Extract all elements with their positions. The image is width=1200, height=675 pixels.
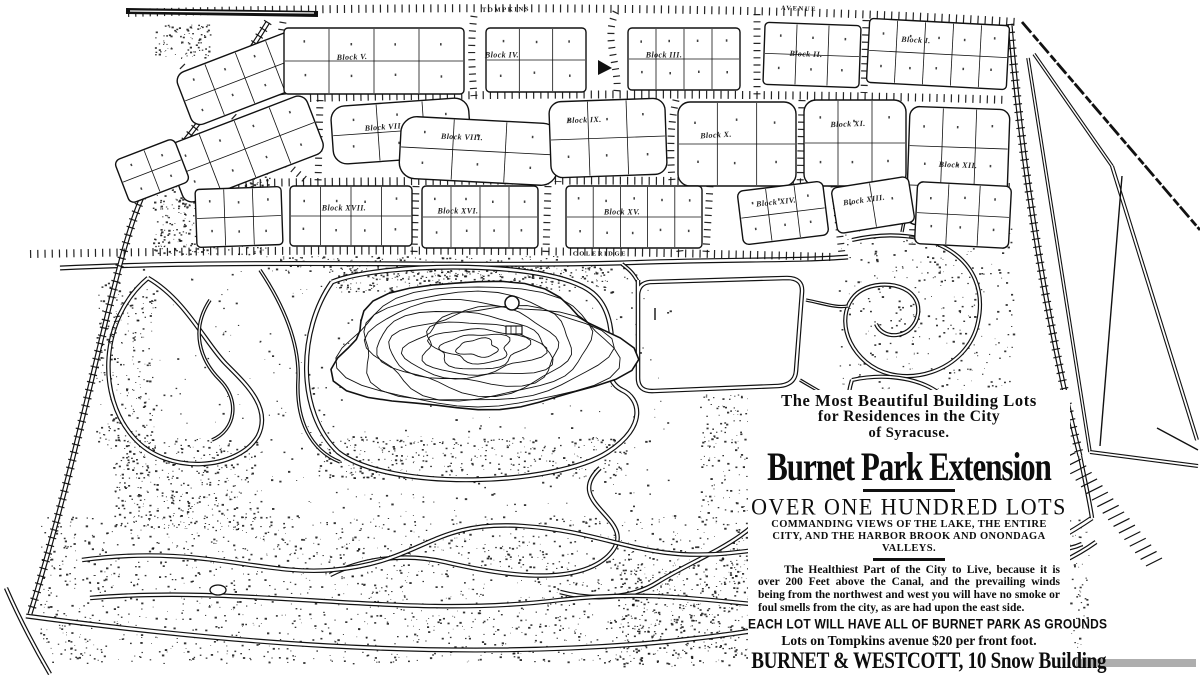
ad-subtitle: OVER ONE HUNDRED LOTS bbox=[748, 494, 1070, 518]
ad-tagline-3: of Syracuse. bbox=[748, 426, 1070, 441]
ad-price-line: Lots on Tompkins avenue $20 per front fo… bbox=[748, 634, 1070, 648]
ad-commanding-views: COMMANDING VIEWS OF THE LAKE, THE ENTIRE… bbox=[759, 519, 1059, 555]
block-label-block-xi: Block XI. bbox=[830, 119, 865, 129]
ad-firm-line: BURNET & WESTCOTT, 10 Snow Building bbox=[751, 650, 1067, 675]
ad-tagline-1: The Most Beautiful Building Lots bbox=[748, 392, 1070, 409]
block-label-block-viii: Block VIII. bbox=[441, 132, 483, 142]
street-label-avenue: AVENUE bbox=[781, 5, 817, 13]
lot-blocks bbox=[114, 18, 1012, 248]
ad-each-lot-line: EACH LOT WILL HAVE ALL OF BURNET PARK AS… bbox=[748, 617, 1070, 631]
street-label-tompkins: TOMPKINS bbox=[482, 6, 530, 14]
street-label-coleridge: COLERIDGE bbox=[573, 251, 627, 258]
ad-tagline-2: for Residences in the City bbox=[748, 409, 1070, 425]
burnet-park-plat-map: TOMPKINSAVENUECOLERIDGEAVERYBlock V.Bloc… bbox=[0, 0, 1200, 675]
block-label-block-xii: Block XII. bbox=[939, 160, 978, 170]
block-label-block-i: Block I. bbox=[901, 35, 931, 46]
block-label-block-iv: Block IV. bbox=[485, 51, 519, 60]
block-label-block-xvi: Block XVI. bbox=[438, 207, 479, 216]
block-label-block-x: Block X. bbox=[700, 130, 732, 141]
block-label-block-ix: Block IX. bbox=[566, 115, 601, 125]
ad-panel: The Most Beautiful Building Lots for Res… bbox=[748, 390, 1070, 675]
ad-title: Burnet Park Extension bbox=[748, 446, 1070, 488]
block-label-block-xvii: Block XVII. bbox=[322, 204, 366, 213]
block-label-block-ii: Block II. bbox=[789, 49, 822, 59]
title-rule bbox=[863, 489, 955, 492]
block-label-block-xv: Block XV. bbox=[604, 208, 640, 217]
commanding-rule bbox=[873, 558, 945, 561]
ad-healthiest-paragraph: The Healthiest Part of the City to Live,… bbox=[758, 564, 1060, 615]
block-label-block-iii: Block III. bbox=[646, 51, 682, 60]
block-label-block-v: Block V. bbox=[337, 52, 368, 62]
